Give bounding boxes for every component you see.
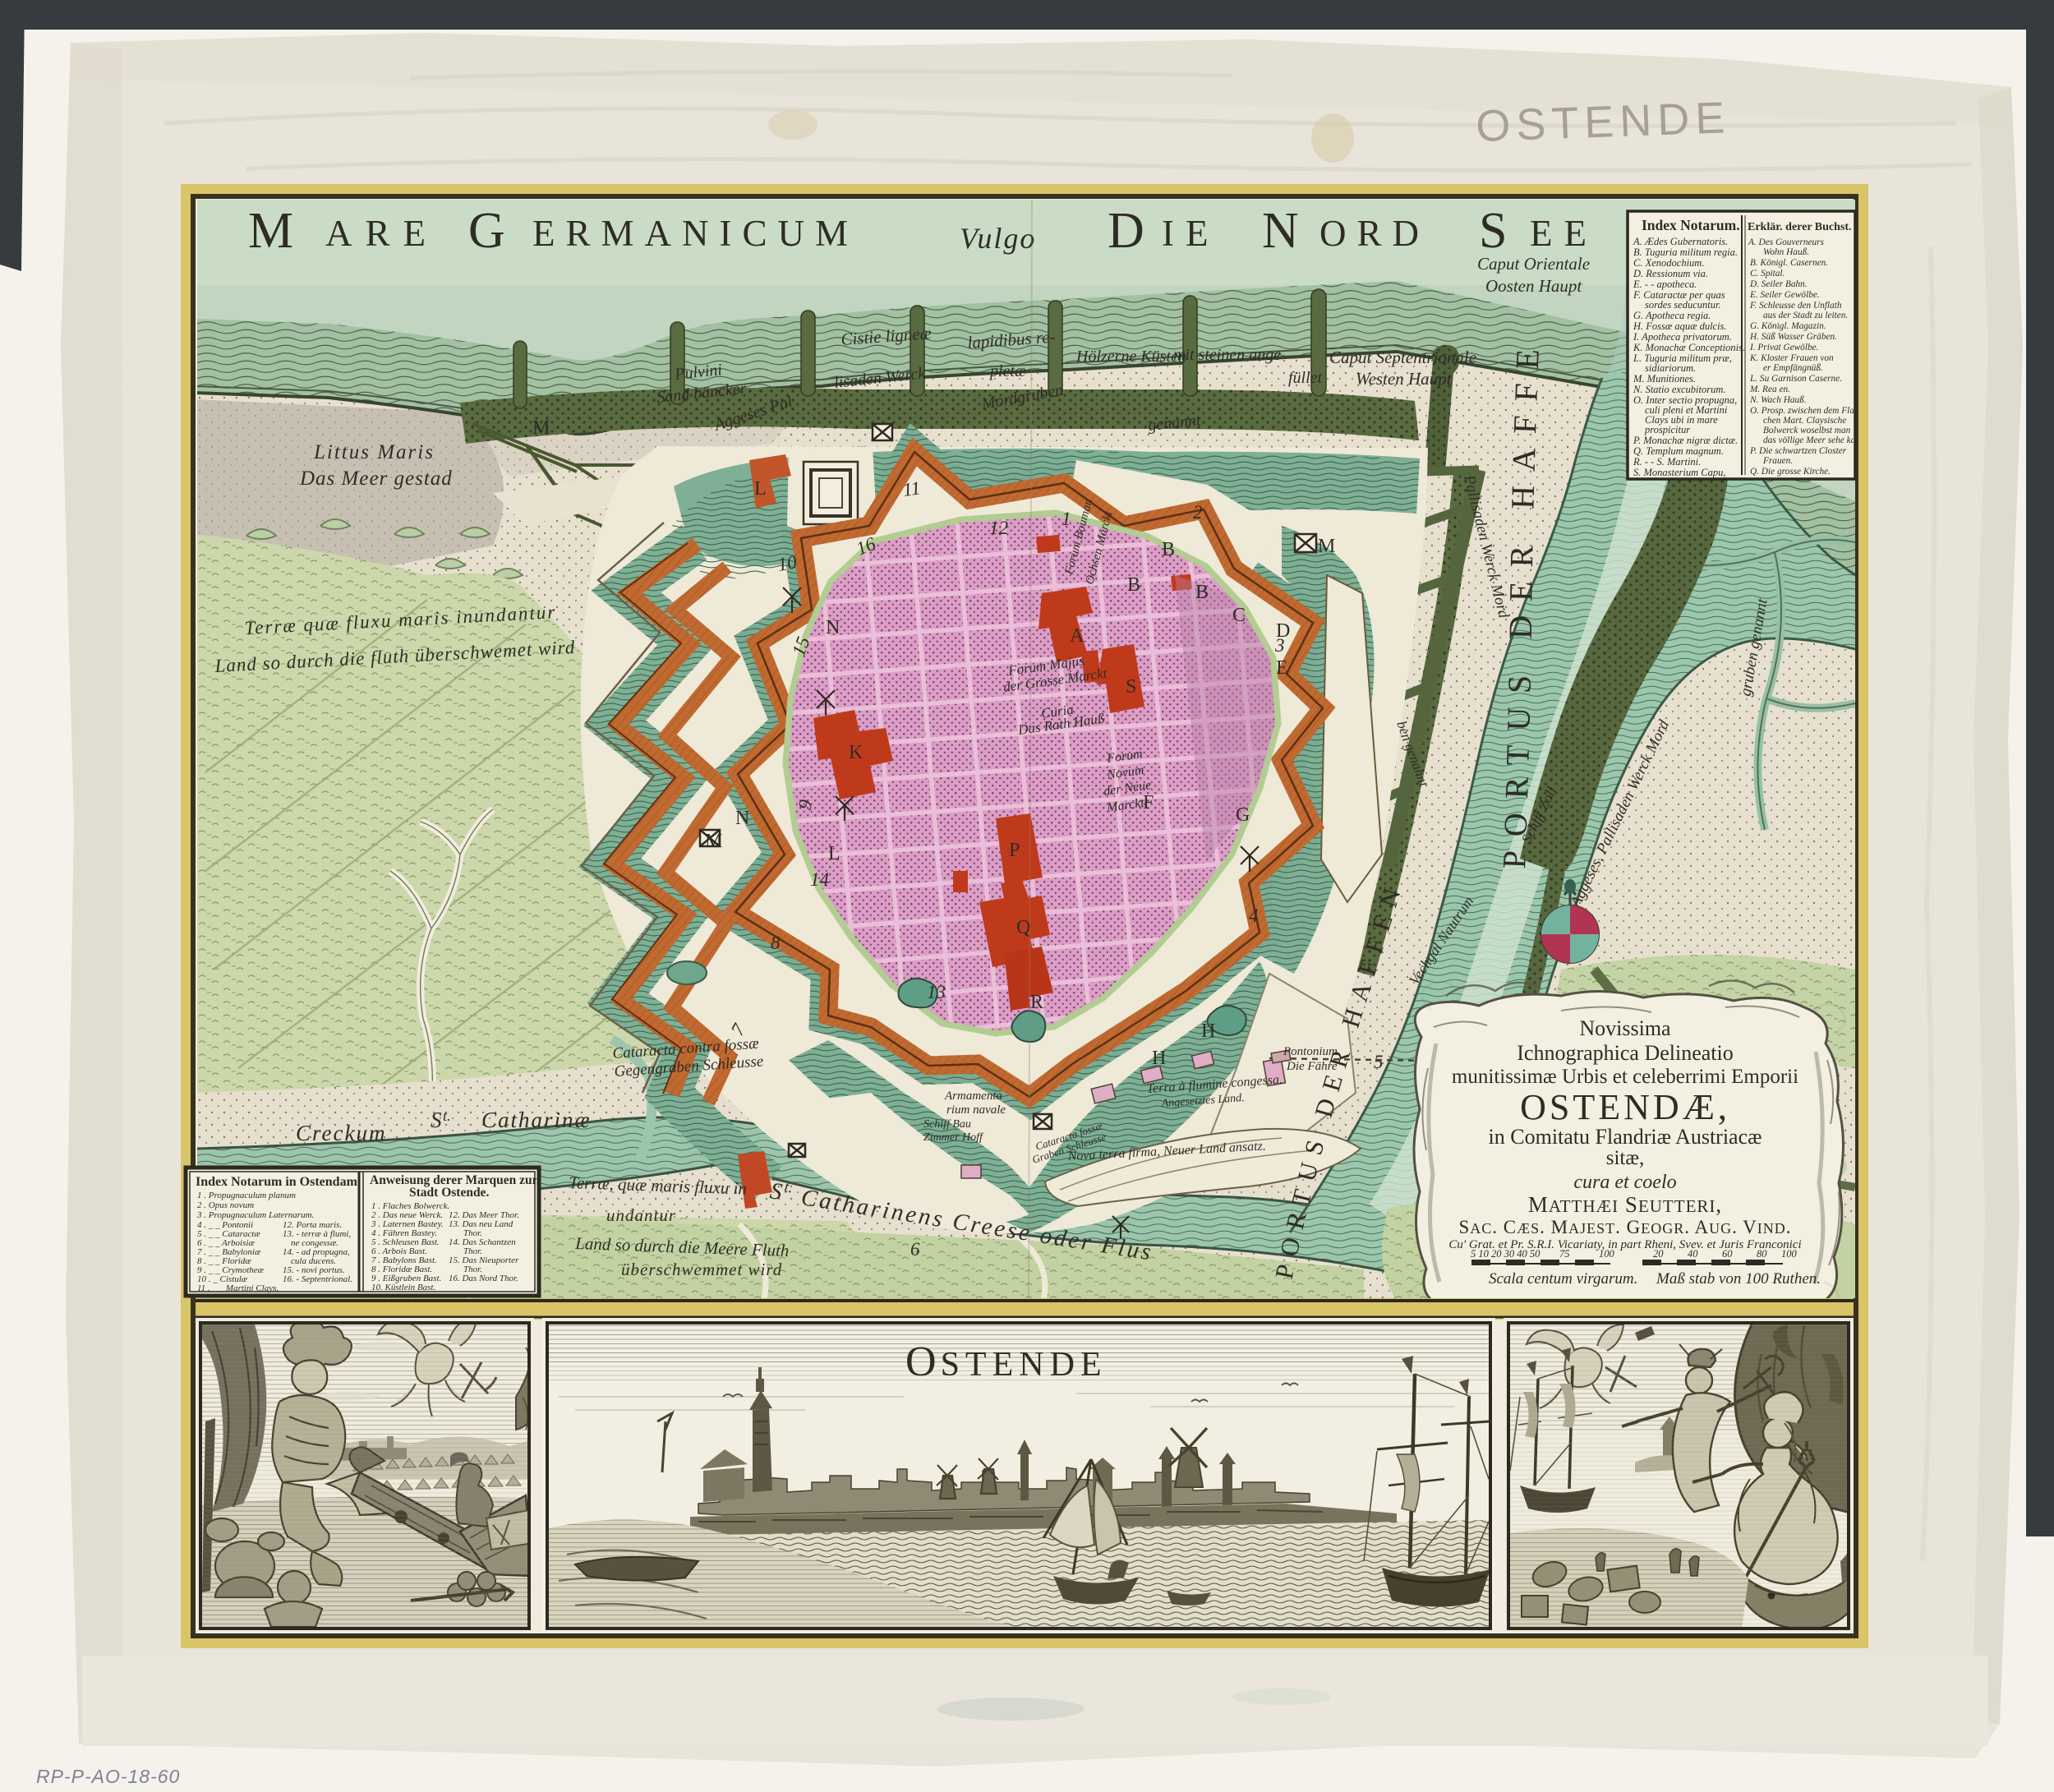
svg-text:Erklär. derer Buchst.: Erklär. derer Buchst.	[1748, 221, 1852, 233]
svg-text:16. Das Nord Thor.: 16. Das Nord Thor.	[449, 1274, 518, 1283]
svg-text:M: M	[248, 203, 293, 259]
svg-text:pletæ: pletæ	[988, 362, 1025, 380]
svg-text:M. Rea en.: M. Rea en.	[1749, 385, 1790, 394]
svg-text:ORD: ORD	[1319, 213, 1430, 254]
svg-text:S: S	[431, 1108, 442, 1132]
svg-text:K: K	[849, 742, 864, 763]
svg-text:N. Statio excubitorum.: N. Statio excubitorum.	[1633, 384, 1726, 395]
svg-text:in Comitatu Flandriæ Austriacæ: in Comitatu Flandriæ Austriacæ	[1489, 1125, 1762, 1149]
svg-text:Wohn Hauß.: Wohn Hauß.	[1763, 247, 1809, 257]
svg-text:chen Mart. Claysische: chen Mart. Claysische	[1763, 416, 1846, 426]
svg-text:Novissima: Novissima	[1579, 1016, 1671, 1040]
svg-text:C. Spital.: C. Spital.	[1750, 269, 1785, 279]
svg-text:Catharinæ: Catharinæ	[481, 1108, 592, 1132]
svg-text:undantur: undantur	[606, 1205, 676, 1225]
svg-text:Oosten Haupt: Oosten Haupt	[1485, 276, 1582, 296]
svg-text:P. Die schwartzen Closter: P. Die schwartzen Closter	[1749, 446, 1847, 456]
svg-text:H: H	[1201, 1020, 1215, 1042]
svg-text:D: D	[1108, 203, 1144, 259]
svg-text:rium navale: rium navale	[946, 1103, 1006, 1117]
svg-text:H. Fossæ aquæ dulcis.: H. Fossæ aquæ dulcis.	[1633, 320, 1727, 332]
svg-text:80: 80	[1757, 1248, 1767, 1260]
svg-text:prospicitur: prospicitur	[1644, 424, 1690, 435]
svg-text:13: 13	[927, 982, 946, 1002]
svg-text:B. Königl. Casernen.: B. Königl. Casernen.	[1750, 258, 1828, 268]
svg-text:Littus Maris: Littus Maris	[313, 441, 435, 463]
svg-text:1: 1	[1062, 509, 1071, 529]
svg-text:Creckum: Creckum	[296, 1121, 386, 1145]
svg-text:1 . Propugnaculum planum: 1 . Propugnaculum planum	[197, 1191, 296, 1200]
svg-text:ARE: ARE	[325, 213, 439, 254]
svg-text:sordes seducuntur.: sordes seducuntur.	[1645, 299, 1721, 311]
svg-text:D. Seiler Bahn.: D. Seiler Bahn.	[1749, 279, 1808, 289]
svg-text:C: C	[1232, 605, 1246, 626]
svg-text:Scala centum virgarum.: Scala centum virgarum.	[1489, 1270, 1637, 1288]
svg-text:Index Notarum.: Index Notarum.	[1642, 217, 1740, 233]
svg-text:Vulgo: Vulgo	[960, 222, 1036, 255]
svg-text:2: 2	[1193, 502, 1203, 523]
svg-text:L: L	[754, 478, 767, 500]
svg-text:das völlige Meer sehe kan.: das völlige Meer sehe kan.	[1763, 435, 1863, 445]
svg-text:Index Notarum in Ostendam.: Index Notarum in Ostendam.	[196, 1175, 361, 1189]
svg-text:I. Privat Gewölbe.: I. Privat Gewölbe.	[1749, 343, 1818, 352]
svg-text:11: 11	[901, 477, 922, 500]
svg-text:Q. Die grosse Kirche.: Q. Die grosse Kirche.	[1750, 467, 1831, 477]
svg-text:Caput Orientale: Caput Orientale	[1477, 254, 1590, 274]
svg-text:D. Ressionum via.: D. Ressionum via.	[1633, 268, 1708, 279]
svg-text:P. Monachæ nigræ dictæ.: P. Monachæ nigræ dictæ.	[1633, 435, 1738, 446]
svg-text:Armamenta: Armamenta	[944, 1089, 1002, 1103]
svg-text:20: 20	[1653, 1248, 1664, 1260]
svg-text:OSTENDÆ,: OSTENDÆ,	[1520, 1087, 1730, 1127]
svg-text:cura et coelo: cura et coelo	[1573, 1172, 1676, 1193]
svg-text:Frauen.: Frauen.	[1762, 456, 1793, 466]
svg-text:Das Meer gestad: Das Meer gestad	[299, 468, 453, 490]
svg-text:5 10 20 30 40 50: 5 10 20 30 40 50	[1471, 1248, 1540, 1260]
svg-text:B. Tuguria militum regia.: B. Tuguria militum regia.	[1633, 246, 1738, 258]
svg-text:Caput Septentrionale: Caput Septentrionale	[1329, 348, 1476, 367]
svg-text:B: B	[1162, 539, 1175, 560]
svg-text:2 . Opus novum: 2 . Opus novum	[197, 1200, 254, 1210]
svg-text:OSTENDE: OSTENDE	[1475, 93, 1731, 151]
svg-text:G. Königl. Magazin.: G. Königl. Magazin.	[1750, 321, 1826, 331]
svg-text:N: N	[1262, 203, 1299, 259]
svg-text:überschwemmet wird: überschwemmet wird	[621, 1260, 782, 1279]
svg-text:mit steinen ange: mit steinen ange	[1173, 346, 1281, 364]
svg-text:10: 10	[776, 551, 799, 575]
svg-text:N: N	[735, 808, 749, 829]
svg-text:Schiff Bau: Schiff Bau	[923, 1118, 971, 1131]
svg-text:B: B	[1195, 582, 1209, 603]
svg-text:A. Des Gouverneurs: A. Des Gouverneurs	[1748, 237, 1825, 247]
svg-text:M. Munitiones.: M. Munitiones.	[1633, 373, 1696, 385]
svg-text:5: 5	[1374, 1052, 1384, 1072]
svg-text:60: 60	[1722, 1248, 1733, 1260]
svg-text:E: E	[1276, 657, 1288, 679]
svg-text:S: S	[1479, 203, 1507, 259]
svg-text:Q. Templum magnum.: Q. Templum magnum.	[1633, 445, 1724, 457]
svg-text:t.: t.	[443, 1108, 451, 1124]
svg-text:sitæ,: sitæ,	[1606, 1147, 1645, 1169]
svg-text:Q: Q	[1016, 917, 1030, 938]
svg-text:8: 8	[771, 933, 781, 953]
svg-text:R: R	[1030, 992, 1043, 1013]
svg-text:E. - - apotheca.: E. - - apotheca.	[1633, 279, 1697, 290]
svg-text:EE: EE	[1530, 213, 1598, 254]
svg-text:sidiariorum.: sidiariorum.	[1645, 362, 1696, 374]
svg-text:Westen Haupt: Westen Haupt	[1356, 369, 1453, 389]
svg-text:A: A	[1070, 625, 1085, 647]
svg-text:M: M	[532, 417, 550, 439]
svg-text:14. Das Schantzen: 14. Das Schantzen	[449, 1237, 516, 1247]
svg-text:O. Prosp. zwischen dem Fla,: O. Prosp. zwischen dem Fla,	[1750, 406, 1857, 416]
svg-text:C. Xenodochium.: C. Xenodochium.	[1633, 257, 1704, 269]
svg-text:11 . _ _ Martini Clays.: 11 . _ _ Martini Clays.	[197, 1283, 279, 1293]
svg-text:14: 14	[810, 869, 829, 890]
svg-text:12: 12	[989, 518, 1008, 538]
svg-text:OSTENDE: OSTENDE	[905, 1338, 1108, 1385]
svg-text:Ichnographica Delineatio: Ichnographica Delineatio	[1517, 1041, 1734, 1065]
svg-text:4: 4	[1249, 905, 1259, 926]
svg-text:3 . Propugnaculum Laternarum.: 3 . Propugnaculum Laternarum.	[196, 1210, 314, 1220]
svg-text:M: M	[705, 831, 722, 852]
svg-text:B: B	[1127, 574, 1140, 596]
svg-text:G: G	[468, 203, 505, 259]
svg-text:SAC. CÆS. MAJEST. GEOGR. AUG.: SAC. CÆS. MAJEST. GEOGR. AUG. VIND.	[1458, 1217, 1791, 1237]
svg-text:L. Su Garnison Caserne.: L. Su Garnison Caserne.	[1749, 374, 1842, 384]
svg-text:Maß stab von 100 Ruthen.: Maß stab von 100 Ruthen.	[1656, 1270, 1821, 1288]
svg-text:A. Ædes Gubernatoris.: A. Ædes Gubernatoris.	[1633, 236, 1728, 247]
svg-text:aus der Stadt zu leiten.: aus der Stadt zu leiten.	[1763, 311, 1848, 320]
svg-text:K. Monachæ Conceptionis.: K. Monachæ Conceptionis.	[1633, 342, 1745, 353]
svg-text:R. - - S. Martini.: R. - - S. Martini.	[1633, 456, 1701, 468]
svg-text:G. Apotheca regia.: G. Apotheca regia.	[1633, 310, 1711, 321]
svg-text:H: H	[1152, 1048, 1166, 1069]
svg-text:K. Kloster Frauen von: K. Kloster Frauen von	[1749, 353, 1834, 363]
svg-text:er Empfängnüß.: er Empfängnüß.	[1763, 363, 1823, 373]
svg-text:H. Süß Wasser Gräben.: H. Süß Wasser Gräben.	[1749, 332, 1837, 342]
svg-text:16. - Septentrional.: 16. - Septentrional.	[283, 1274, 352, 1284]
svg-text:F: F	[1143, 792, 1154, 813]
svg-text:100: 100	[1599, 1248, 1615, 1260]
svg-text:I. Apotheca privatorum.: I. Apotheca privatorum.	[1633, 331, 1732, 343]
svg-text:Zimmer Hoff: Zimmer Hoff	[923, 1131, 984, 1144]
svg-text:100: 100	[1781, 1248, 1798, 1260]
svg-text:IE: IE	[1162, 213, 1219, 254]
svg-text:D: D	[1276, 620, 1290, 642]
svg-text:N. Wach Hauß.: N. Wach Hauß.	[1749, 395, 1807, 405]
svg-text:L: L	[828, 843, 840, 864]
svg-text:G: G	[1236, 804, 1250, 826]
svg-text:Hölzerne Küsten: Hölzerne Küsten	[1075, 348, 1186, 366]
svg-text:40: 40	[1688, 1248, 1698, 1260]
svg-text:ERMANICUM: ERMANICUM	[532, 213, 859, 254]
svg-text:MATTHÆI SEUTTERI,: MATTHÆI SEUTTERI,	[1528, 1192, 1722, 1217]
svg-text:M: M	[1318, 536, 1335, 557]
svg-text:6: 6	[910, 1239, 920, 1260]
svg-text:N: N	[826, 617, 840, 638]
svg-text:füllet: füllet	[1288, 369, 1323, 387]
svg-text:Bolwerck woselbst man: Bolwerck woselbst man	[1763, 426, 1851, 435]
svg-text:munitissimæ Urbis et celeberri: munitissimæ Urbis et celeberrimi Emporii	[1452, 1066, 1798, 1088]
svg-text:15. Das Nieuporter: 15. Das Nieuporter	[449, 1255, 519, 1265]
svg-text:S: S	[1126, 676, 1136, 698]
svg-text:75: 75	[1559, 1248, 1570, 1260]
svg-text:P: P	[1009, 840, 1020, 861]
svg-text:Stadt Ostende.: Stadt Ostende.	[409, 1186, 489, 1200]
svg-text:RP-P-AO-18-60: RP-P-AO-18-60	[36, 1766, 180, 1787]
svg-text:E. Seiler Gewölbe.: E. Seiler Gewölbe.	[1749, 290, 1820, 300]
svg-text:F. Schleusse den Unflath: F. Schleusse den Unflath	[1749, 301, 1842, 311]
